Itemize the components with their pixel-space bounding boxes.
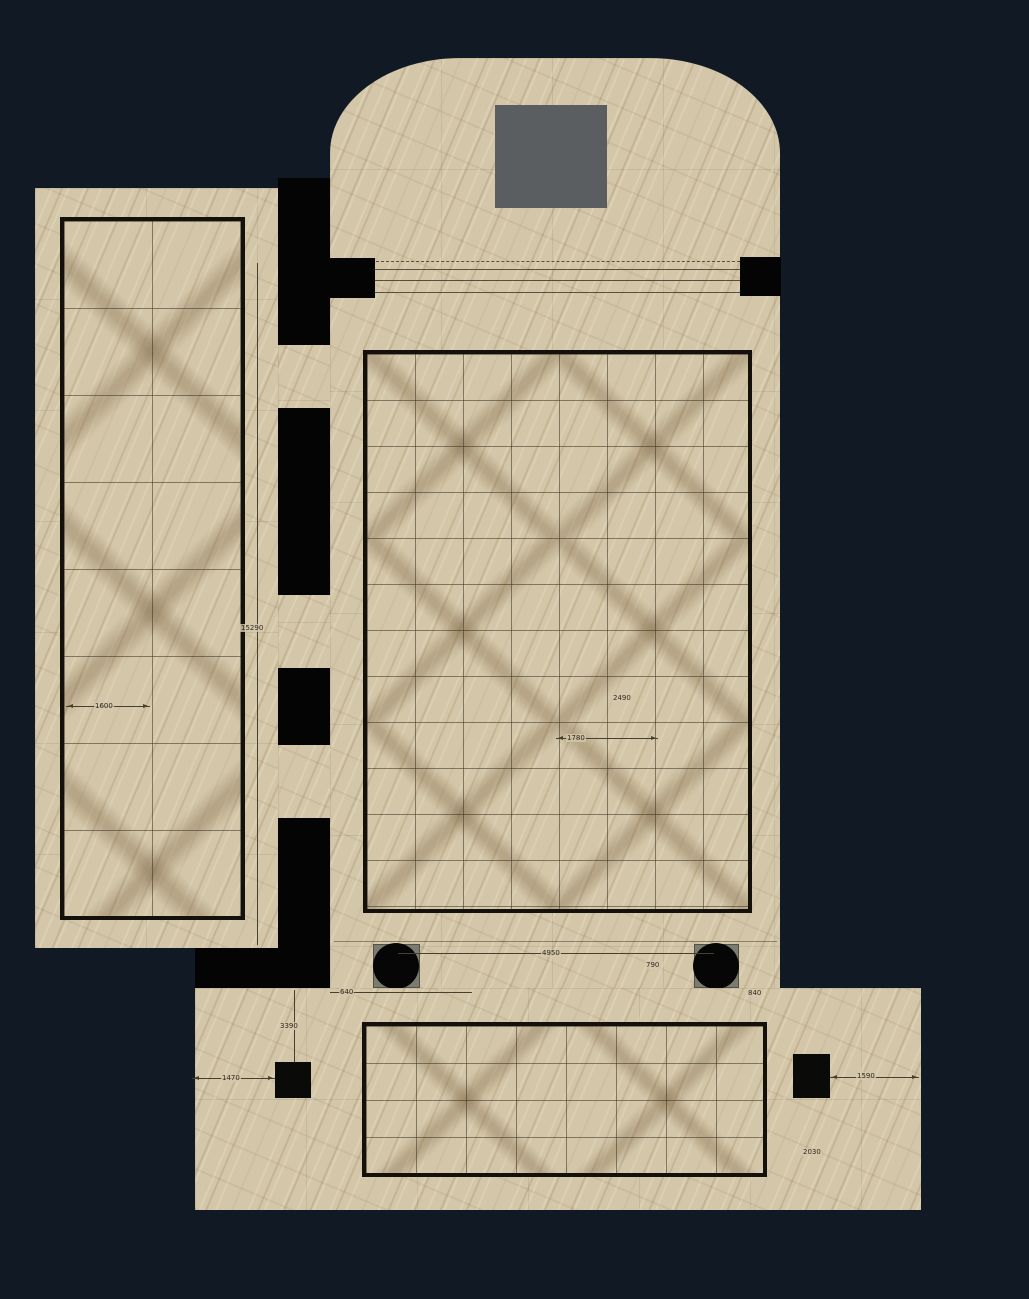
dim-label-column-offset: 790 <box>645 961 660 969</box>
pier-right[interactable] <box>793 1054 830 1098</box>
wall-block[interactable] <box>278 408 330 595</box>
wall-block-step-right[interactable] <box>740 257 781 296</box>
step-line <box>350 292 762 293</box>
dim-label-gallery-tile: 1600 <box>94 702 114 710</box>
left-gallery-tile-panel <box>60 217 245 920</box>
main-hall-tile-panel <box>363 350 752 913</box>
vestibule-floor[interactable] <box>195 988 921 1210</box>
dim-label-hall-tile-width: 1780 <box>566 734 586 742</box>
wall-block-step-left[interactable] <box>320 258 375 298</box>
step-line <box>376 261 740 262</box>
dim-label-step-left: 640 <box>339 988 354 996</box>
altar-block[interactable] <box>495 105 607 208</box>
dim-label-column-span: 4950 <box>541 949 561 957</box>
step-line <box>350 280 762 281</box>
dim-label-hall-tile-diag: 2490 <box>612 694 632 702</box>
step-line <box>360 269 755 270</box>
pier-left[interactable] <box>275 1062 311 1098</box>
construction-line <box>334 941 777 942</box>
column-right[interactable] <box>693 943 739 989</box>
apse-and-nave-floor[interactable] <box>330 58 780 990</box>
dim-label-porch-width: 2030 <box>802 1148 822 1156</box>
left-gallery-floor[interactable] <box>35 188 278 948</box>
vestibule-tile-panel <box>362 1022 767 1177</box>
dim-label-porch-depth: 3390 <box>279 1022 299 1030</box>
wall-block[interactable] <box>278 668 330 745</box>
dim-label-step-right: 840 <box>747 989 762 997</box>
floor-plan-canvas[interactable]: 15290 1600 2490 1780 4950 790 640 840 33… <box>0 0 1029 1299</box>
dimension-line-gallery-length <box>257 263 258 945</box>
wall-block-bottom-bar[interactable] <box>195 948 328 988</box>
dim-label-pier-left-offset: 1470 <box>221 1074 241 1082</box>
dim-label-pier-right-offset: 1590 <box>856 1072 876 1080</box>
column-left[interactable] <box>373 943 419 989</box>
dim-label-gallery-length: 15290 <box>240 624 264 632</box>
